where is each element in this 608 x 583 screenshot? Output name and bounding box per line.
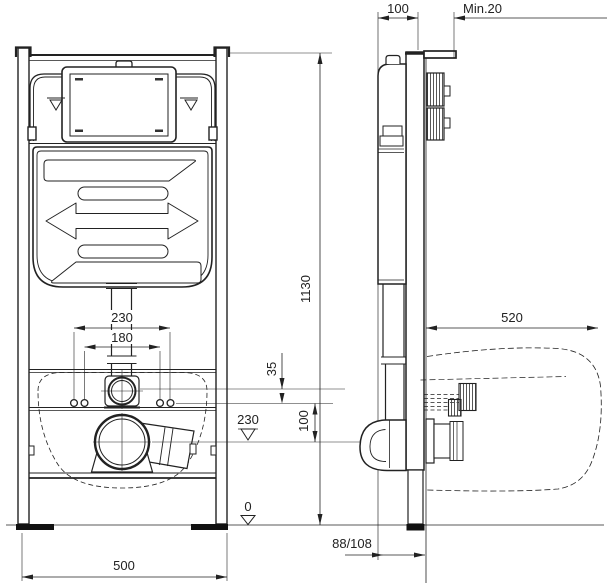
mounting-bolt-hole xyxy=(71,400,78,407)
water-level-symbol-right xyxy=(180,98,198,110)
panel-corner-mark xyxy=(75,78,83,81)
dim-label-min20: Min.20 xyxy=(463,1,502,16)
dim-label-500: 500 xyxy=(113,558,135,573)
top-wall-bracket xyxy=(424,51,456,58)
dim-installation-depth: 520 xyxy=(426,310,598,331)
front-view xyxy=(16,48,229,531)
rail-connector-left xyxy=(28,127,36,140)
flush-pipe-side xyxy=(381,284,406,420)
foot-plate-right xyxy=(191,524,228,530)
fixing-nut xyxy=(449,400,462,417)
level-marker-floor: 0 xyxy=(241,499,255,525)
mounting-bolt-hole xyxy=(157,400,164,407)
wall-bracket-hatched xyxy=(427,73,450,140)
rail-connector-right xyxy=(209,127,217,140)
frame-right-rail xyxy=(216,48,227,524)
mounting-bolt-hole xyxy=(167,400,174,407)
bowl-outline-side xyxy=(421,348,602,491)
cistern-side xyxy=(378,56,406,285)
frame-left-rail xyxy=(18,48,29,524)
dim-frame-depth: 100 xyxy=(378,1,418,50)
mounting-bolt-hole xyxy=(81,400,88,407)
dim-flush-offset: 35 xyxy=(264,353,285,404)
level-marker-outlet: 230 xyxy=(237,412,259,440)
outlet-connector-side xyxy=(426,419,463,463)
panel-corner-mark xyxy=(155,130,163,133)
dim-frame-width: 500 xyxy=(22,533,227,581)
foot-plate-side xyxy=(407,524,425,531)
dim-label-230-level: 230 xyxy=(237,412,259,427)
frame-leg-side xyxy=(407,470,425,531)
panel-corner-mark xyxy=(75,130,83,133)
dim-frame-height: 1130 xyxy=(229,53,332,525)
rail-tab-right xyxy=(211,446,216,455)
dimensions: 230 180 35 100 2 xyxy=(22,1,607,581)
side-view xyxy=(360,12,601,583)
dim-label-100-depth: 100 xyxy=(387,1,409,16)
dim-label-180-inner: 180 xyxy=(111,330,133,345)
dim-label-1130: 1130 xyxy=(298,275,313,303)
dim-bolt-to-outlet: 100 xyxy=(296,404,318,443)
wc-frame-drawing: 230 180 35 100 2 xyxy=(0,0,608,583)
frame-rail-side xyxy=(406,52,424,470)
dim-label-230-outer: 230 xyxy=(111,310,133,325)
flush-connection xyxy=(101,370,143,409)
panel-corner-mark xyxy=(155,78,163,81)
foot-plate-left xyxy=(16,524,54,530)
dim-outlet-distance: 88/108 xyxy=(332,536,425,558)
panel-top-tab xyxy=(116,61,132,67)
cistern-front xyxy=(33,147,212,287)
dim-label-88-108: 88/108 xyxy=(332,536,372,551)
dim-label-100-vertical: 100 xyxy=(296,410,311,432)
waste-elbow-side xyxy=(360,420,406,471)
waste-outlet-front xyxy=(92,413,153,472)
flush-plate-opening xyxy=(62,61,176,142)
rail-tab-left xyxy=(29,446,34,455)
dim-min-clearance: Min.20 xyxy=(454,1,607,58)
dim-label-0-level: 0 xyxy=(244,499,251,514)
fill-valve-cap xyxy=(386,56,400,65)
technical-drawing-canvas: 230 180 35 100 2 xyxy=(0,0,608,583)
dim-label-520: 520 xyxy=(501,310,523,325)
panel-inner-frame xyxy=(70,74,168,136)
dim-label-35: 35 xyxy=(264,362,279,376)
